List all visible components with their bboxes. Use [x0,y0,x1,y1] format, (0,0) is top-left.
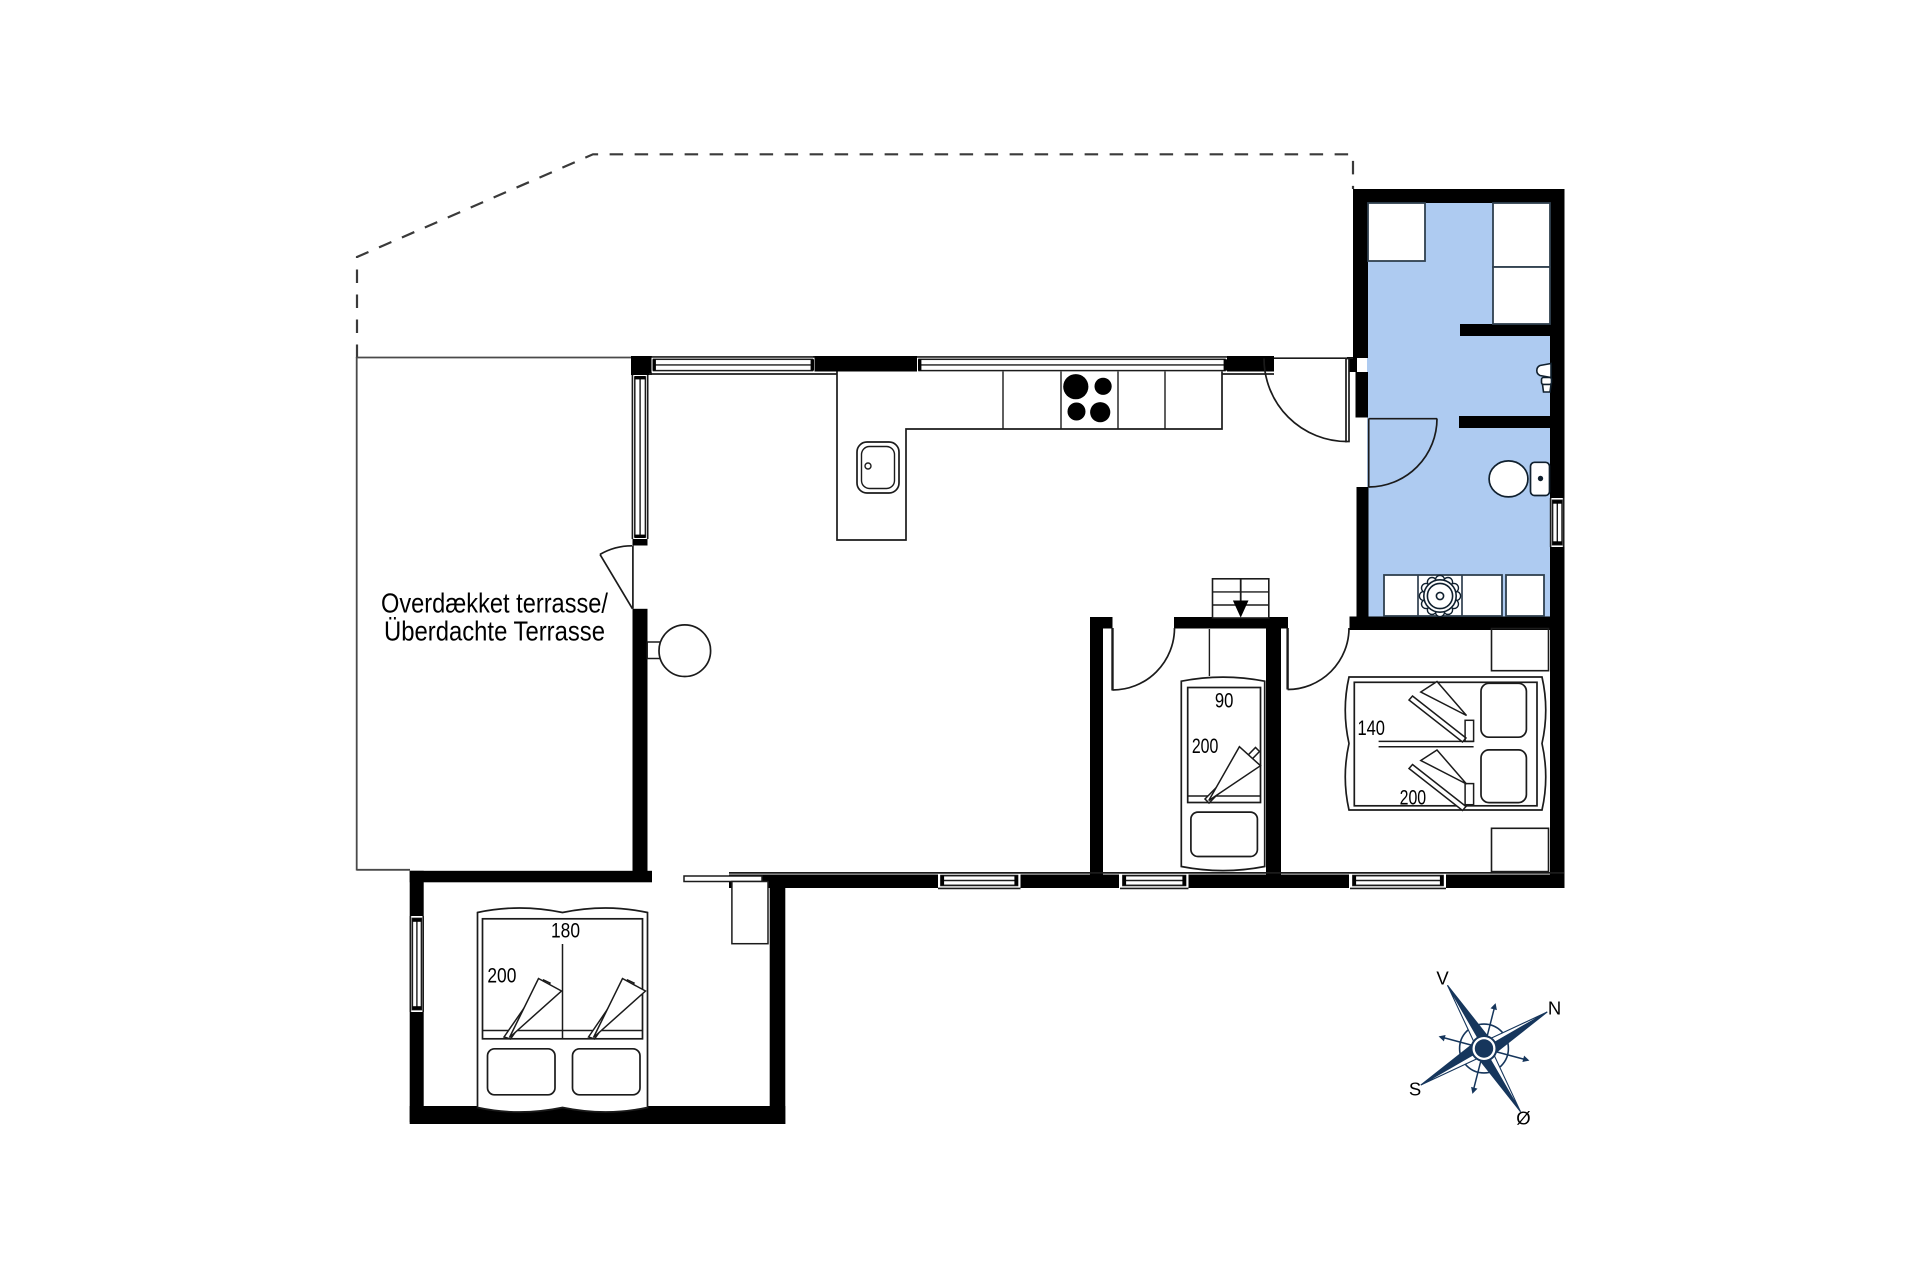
svg-text:180: 180 [551,920,580,943]
svg-text:Überdachte Terrasse: Überdachte Terrasse [384,616,605,647]
svg-text:90: 90 [1215,690,1234,713]
svg-text:Overdækket terrasse/: Overdækket terrasse/ [381,588,608,619]
svg-text:200: 200 [1400,787,1427,810]
svg-text:140: 140 [1357,717,1385,740]
svg-text:V: V [1436,968,1449,989]
svg-text:Ø: Ø [1516,1108,1530,1129]
svg-text:200: 200 [1192,735,1219,758]
svg-text:200: 200 [487,965,516,988]
svg-text:N: N [1548,998,1561,1019]
svg-text:S: S [1409,1079,1421,1100]
